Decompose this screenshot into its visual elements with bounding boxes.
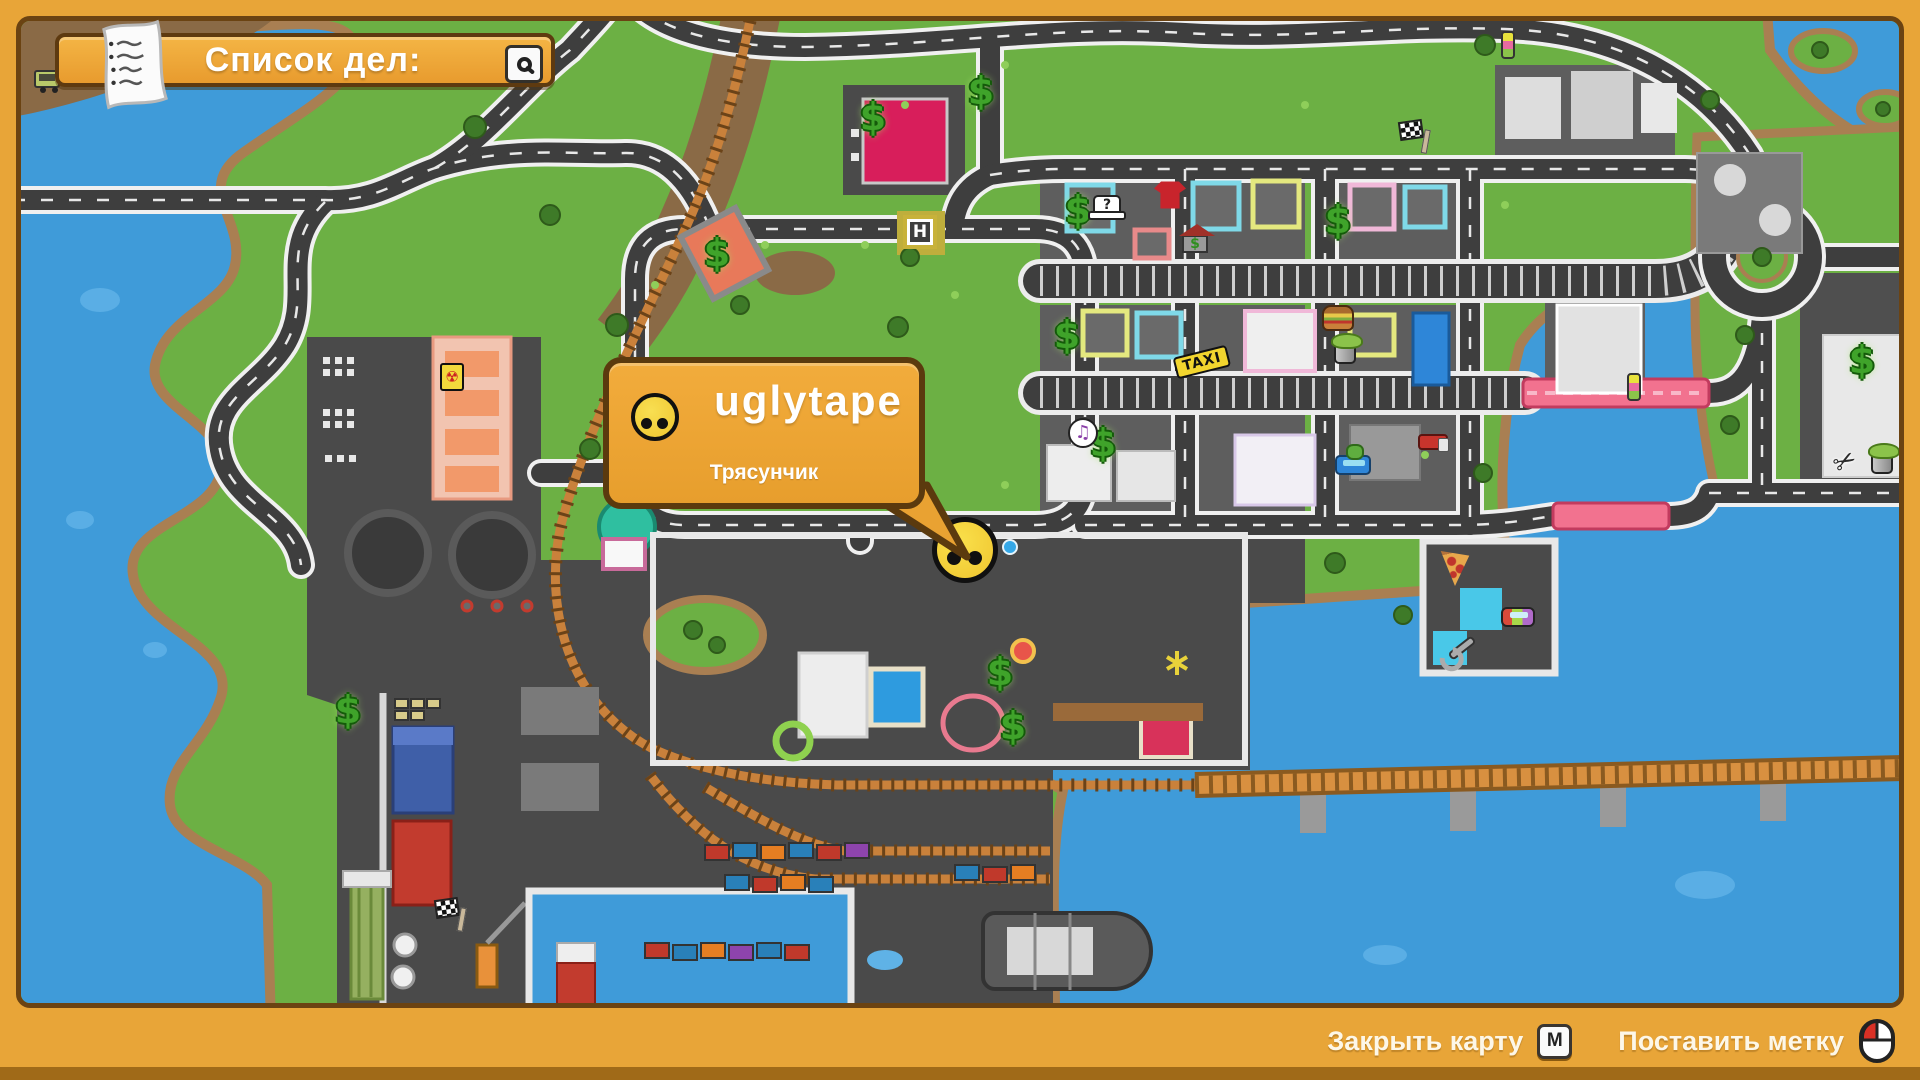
magnifier-icon [517,57,532,72]
todo-banner: Список дел: [55,33,555,87]
close-map-key: M [1537,1024,1572,1059]
player-status: Трясунчик [609,461,919,485]
map-stage: $$$$$$$$$$$?$HTAXI♫✂☢ uglytape Трясунчик [16,16,1904,1008]
magnifier-button[interactable] [505,45,543,83]
speech-bubble: uglytape Трясунчик [603,357,925,509]
map[interactable]: $$$$$$$$$$$?$HTAXI♫✂☢ uglytape Трясунчик [16,16,1904,1008]
close-map-label: Закрыть карту [1327,1026,1523,1057]
place-marker-label: Поставить метку [1618,1026,1844,1057]
frame-bottom-strip [0,1067,1920,1080]
close-map-control[interactable]: Закрыть карту M [1327,1024,1572,1059]
bottom-bar: Закрыть карту M Поставить метку [0,1016,1920,1066]
player-name: uglytape [701,377,916,425]
todo-banner-label: Список дел: [205,41,422,80]
mouse-icon [1858,1018,1896,1064]
note-icon [91,16,177,112]
smiley-face-icon [631,393,679,441]
place-marker-control[interactable]: Поставить метку [1618,1018,1896,1064]
